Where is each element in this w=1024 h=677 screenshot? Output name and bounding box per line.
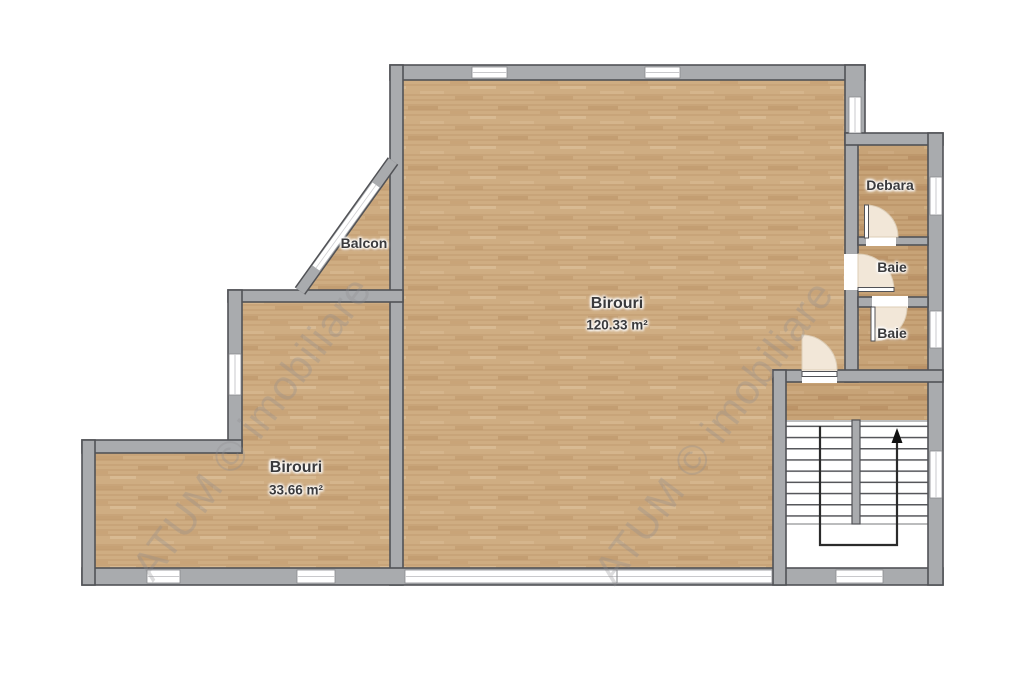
wall-left-main [390, 65, 403, 585]
wall-corridor-top [773, 370, 943, 382]
wall-stair-left [773, 370, 786, 585]
room-label-baie-upper: Baie [877, 259, 907, 275]
door-leaf-baie-upper [858, 288, 894, 292]
staircase [786, 420, 928, 568]
door-leaf-corridor [802, 372, 837, 377]
room-area-birouri-main: 120.33 m² [586, 318, 648, 333]
door-opening-baie-lower [872, 296, 908, 308]
room-label-debara: Debara [866, 177, 913, 193]
room-label-balcon: Balcon [341, 235, 388, 251]
floor-plan-drawing [0, 0, 1024, 677]
floor-corridor [786, 382, 928, 420]
room-label-birouri-small: Birouri [270, 459, 322, 477]
wall-small-room-left-lower [82, 440, 95, 585]
door-opening-baie-upper [844, 254, 859, 290]
wall-step [82, 440, 242, 453]
room-label-baie-lower: Baie [877, 325, 907, 341]
wall-top [390, 65, 865, 80]
wall-small-room-top [228, 290, 403, 302]
room-label-birouri-main: Birouri [591, 295, 643, 313]
door-leaf-debara [865, 205, 869, 238]
room-area-birouri-small: 33.66 m² [269, 483, 323, 498]
stair-divider-wall [852, 420, 860, 524]
door-leaf-baie-lower [871, 307, 875, 341]
floor-plan-canvas: Birouri 120.33 m² Birouri 33.66 m² Balco… [0, 0, 1024, 677]
